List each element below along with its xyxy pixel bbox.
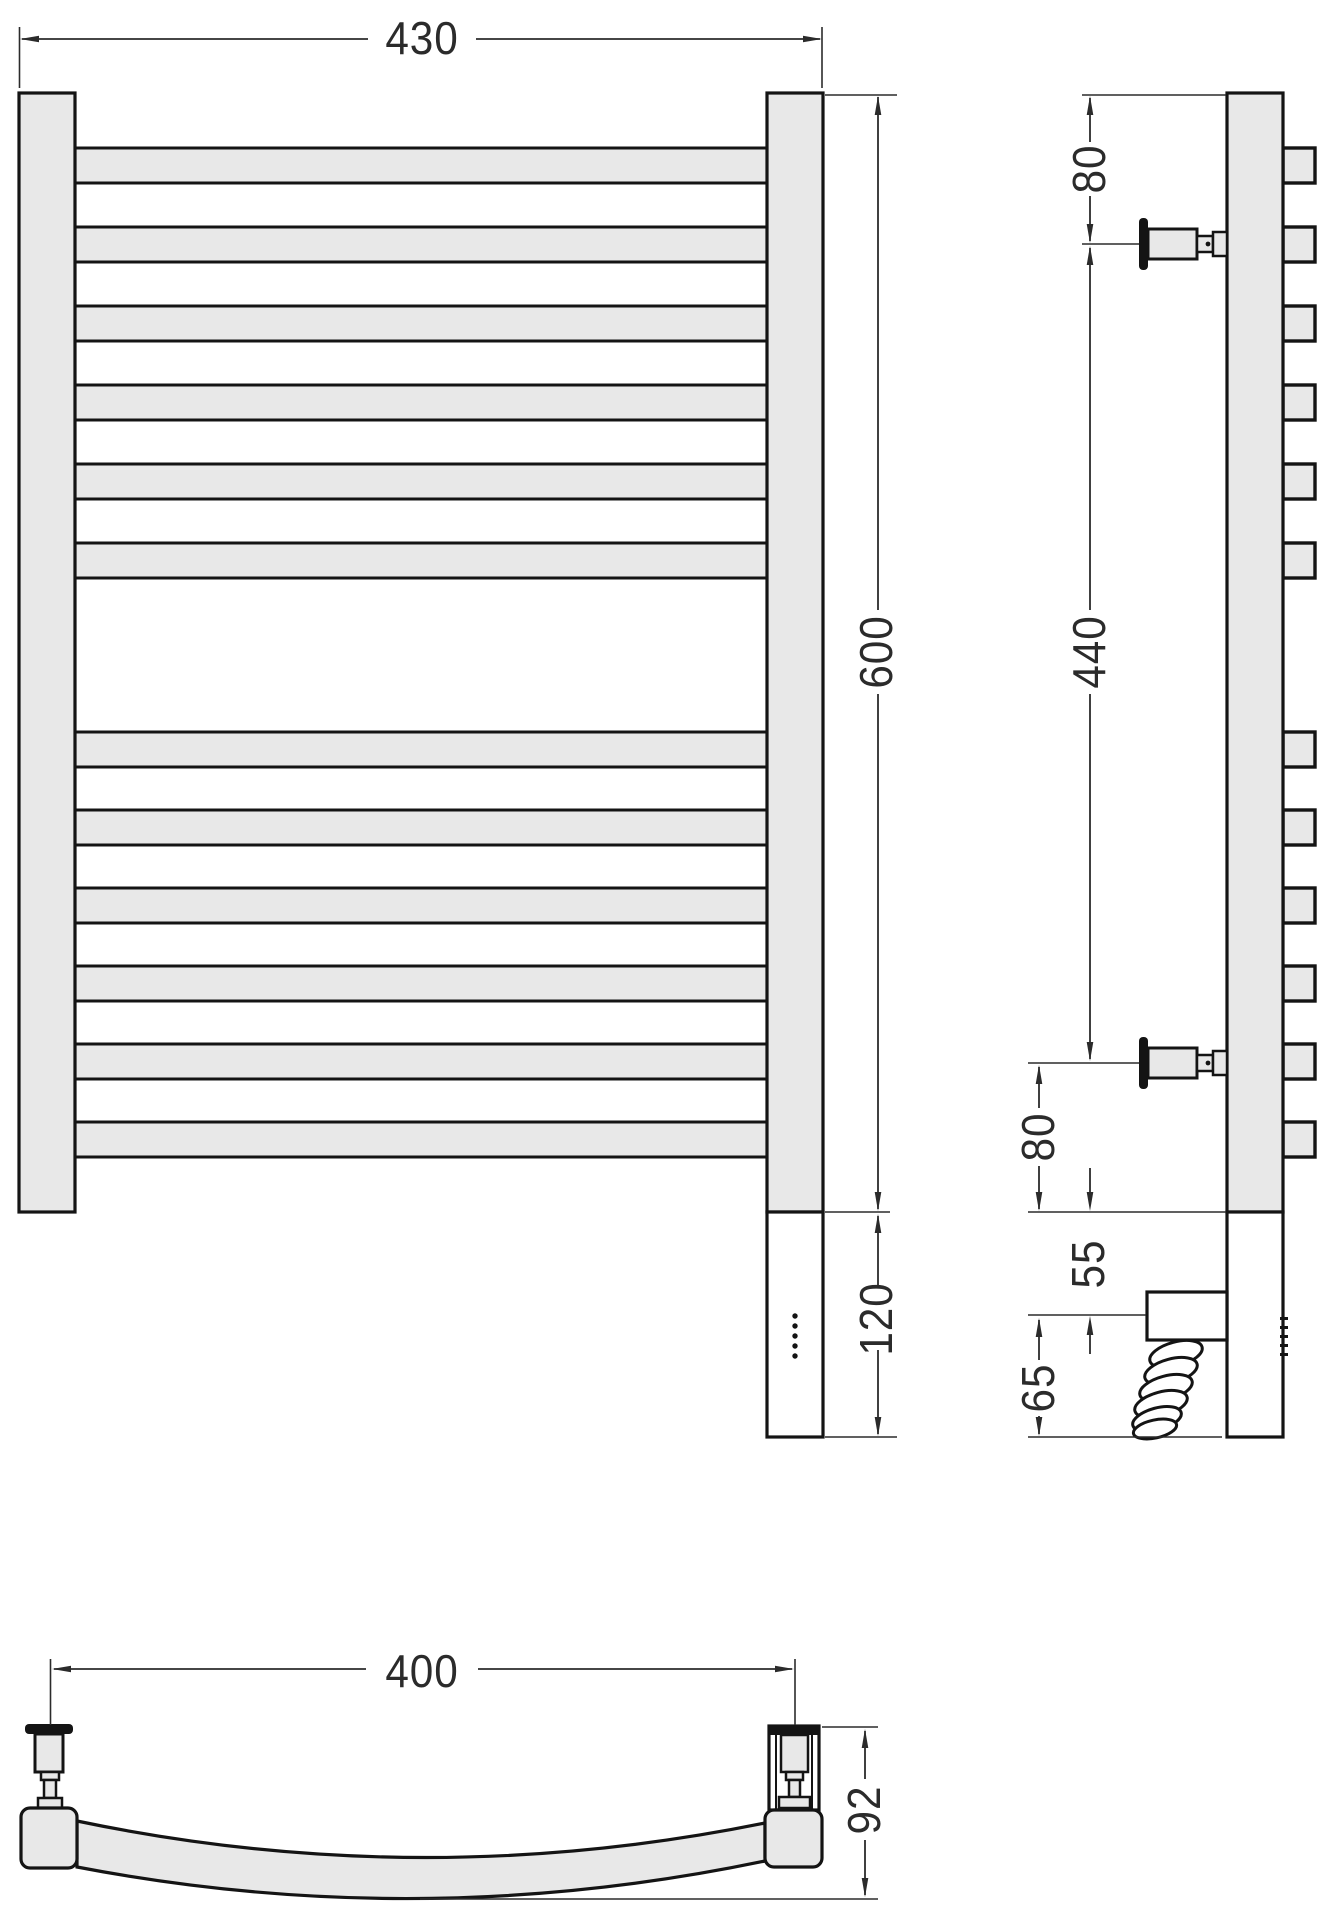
towel-bars-front xyxy=(75,148,767,1157)
coiled-cable xyxy=(1130,1335,1205,1442)
towel-bar xyxy=(75,148,767,183)
bracket-neck xyxy=(1197,236,1213,252)
technical-drawing: 430 600 120 80 440 80 55 65 400 92 xyxy=(0,0,1336,1920)
dim-label-bracket-span: 440 xyxy=(1062,615,1116,688)
corner-block-left xyxy=(21,1808,77,1868)
bar-stub xyxy=(1283,966,1315,1001)
left-post xyxy=(19,93,75,1212)
dim-label-heater-section: 120 xyxy=(849,1282,903,1355)
dim-label-overall-depth: 92 xyxy=(837,1786,891,1835)
wall-bracket-bottom xyxy=(1139,1037,1227,1089)
drawing-linework xyxy=(0,0,1336,1920)
valve-flange-bottom xyxy=(779,1797,810,1808)
towel-bar xyxy=(75,966,767,1001)
bar-stub xyxy=(1283,543,1315,578)
towel-bar xyxy=(75,385,767,420)
curved-tube xyxy=(77,1821,765,1899)
heater-housing-side xyxy=(1227,1212,1283,1437)
bracket-body xyxy=(1148,229,1197,259)
dim-label-valve-spacing: 400 xyxy=(385,1644,458,1698)
indicator-tick xyxy=(1280,1317,1288,1320)
valve-left xyxy=(21,1724,77,1868)
towel-bar xyxy=(75,1044,767,1079)
bar-stub xyxy=(1283,732,1315,767)
dim-label-bottom-offset: 80 xyxy=(1011,1113,1065,1162)
towel-bar xyxy=(75,810,767,845)
bar-stub xyxy=(1283,148,1315,183)
towel-bar xyxy=(75,888,767,923)
bracket-pin xyxy=(1206,242,1211,247)
valve-body xyxy=(35,1734,63,1772)
bar-stub xyxy=(1283,227,1315,262)
indicator-tick xyxy=(1280,1344,1288,1347)
bar-stub xyxy=(1283,464,1315,499)
towel-bar xyxy=(75,464,767,499)
dim-label-rail-height: 600 xyxy=(849,615,903,688)
bracket-pin xyxy=(1206,1061,1211,1066)
indicator-dot xyxy=(792,1313,797,1318)
bar-stub xyxy=(1283,306,1315,341)
valve-right xyxy=(765,1726,822,1867)
indicator-tick xyxy=(1280,1353,1288,1356)
indicator-tick xyxy=(1280,1335,1288,1338)
bracket-neck xyxy=(1197,1055,1213,1071)
bottom-view xyxy=(21,1724,822,1899)
indicator-dot xyxy=(792,1353,797,1358)
bar-stubs xyxy=(1283,148,1315,1157)
dim-label-heater-axis-end: 65 xyxy=(1011,1364,1065,1413)
side-post xyxy=(1227,93,1283,1212)
dim-label-top-offset: 80 xyxy=(1062,145,1116,194)
towel-bar xyxy=(75,1122,767,1157)
bar-stub xyxy=(1283,810,1315,845)
towel-bar xyxy=(75,227,767,262)
indicator-dot xyxy=(792,1343,797,1348)
side-view xyxy=(1130,93,1315,1442)
heater-box xyxy=(1147,1292,1227,1340)
valve-flange-top xyxy=(769,1726,819,1735)
bar-stub xyxy=(1283,888,1315,923)
right-post xyxy=(767,93,823,1212)
bar-stub xyxy=(1283,385,1315,420)
corner-block-right xyxy=(765,1810,822,1867)
indicator-dot xyxy=(792,1333,797,1338)
indicator-tick xyxy=(1280,1326,1288,1329)
bracket-collar xyxy=(1213,232,1227,256)
front-view xyxy=(19,93,823,1437)
towel-bar xyxy=(75,732,767,767)
towel-bar xyxy=(75,543,767,578)
wall-bracket-top xyxy=(1139,218,1227,270)
bar-stub xyxy=(1283,1122,1315,1157)
valve-stem xyxy=(44,1780,56,1798)
dim-label-overall-width: 430 xyxy=(385,11,458,65)
valve-body xyxy=(781,1735,808,1772)
bar-stub xyxy=(1283,1044,1315,1079)
bracket-collar xyxy=(1213,1051,1227,1075)
valve-stem xyxy=(789,1780,800,1797)
bracket-body xyxy=(1148,1048,1197,1078)
dim-label-heater-axis-offset: 55 xyxy=(1061,1240,1115,1289)
indicator-dot xyxy=(792,1323,797,1328)
towel-bar xyxy=(75,306,767,341)
